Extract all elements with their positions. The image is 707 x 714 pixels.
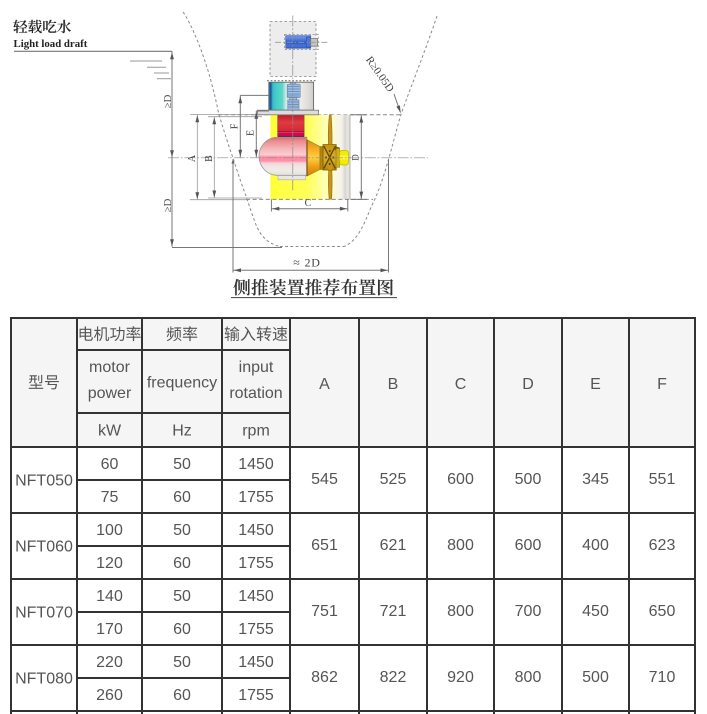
svg-text:F: F [657,376,667,393]
svg-text:800: 800 [447,537,474,554]
svg-text:rotation: rotation [229,385,282,402]
svg-text:C: C [305,198,312,209]
svg-text:260: 260 [96,687,123,704]
svg-text:545: 545 [311,471,338,488]
svg-text:60: 60 [101,456,119,473]
svg-text:140: 140 [96,588,123,605]
svg-text:A: A [319,376,330,393]
svg-text:920: 920 [447,669,474,686]
svg-text:input: input [239,359,274,376]
svg-text:500: 500 [515,471,542,488]
svg-text:power: power [88,385,132,402]
svg-text:1450: 1450 [238,522,274,539]
svg-text:862: 862 [311,669,338,686]
svg-text:D: D [350,154,360,161]
svg-text:kW: kW [98,423,122,440]
svg-text:700: 700 [515,603,542,620]
svg-text:50: 50 [173,654,191,671]
svg-text:710: 710 [649,669,676,686]
svg-text:551: 551 [649,471,676,488]
svg-text:NFT050: NFT050 [15,472,73,489]
svg-text:NFT060: NFT060 [15,538,73,555]
svg-text:60: 60 [173,555,191,572]
svg-text:1755: 1755 [238,489,274,506]
svg-text:500: 500 [582,669,609,686]
svg-text:60: 60 [173,621,191,638]
svg-text:650: 650 [649,603,676,620]
svg-text:1755: 1755 [238,687,274,704]
svg-text:651: 651 [311,537,338,554]
svg-text:1450: 1450 [238,456,274,473]
svg-text:50: 50 [173,588,191,605]
svg-text:1450: 1450 [238,588,274,605]
svg-text:50: 50 [173,522,191,539]
svg-text:100: 100 [96,522,123,539]
svg-text:220: 220 [96,654,123,671]
svg-text:621: 621 [380,537,407,554]
svg-text:822: 822 [380,669,407,686]
svg-text:50: 50 [173,456,191,473]
svg-text:D: D [522,376,534,393]
svg-text:1450: 1450 [238,654,274,671]
svg-text:751: 751 [311,603,338,620]
svg-text:A: A [187,154,198,162]
svg-text:R≥0.05D: R≥0.05D [363,54,396,94]
svg-text:1755: 1755 [238,555,274,572]
svg-text:800: 800 [515,669,542,686]
svg-text:Light load draft: Light load draft [14,38,88,50]
svg-text:NFT070: NFT070 [15,604,73,621]
svg-text:≈ 2D: ≈ 2D [293,256,320,270]
svg-text:E: E [245,130,256,136]
svg-text:B: B [388,376,399,393]
svg-text:400: 400 [582,537,609,554]
svg-text:600: 600 [515,537,542,554]
svg-text:525: 525 [380,471,407,488]
svg-text:F: F [229,123,240,129]
svg-text:800: 800 [447,603,474,620]
svg-text:345: 345 [582,471,609,488]
svg-text:60: 60 [173,687,191,704]
svg-text:1755: 1755 [238,621,274,638]
svg-text:C: C [455,376,467,393]
svg-text:450: 450 [582,603,609,620]
svg-text:60: 60 [173,489,191,506]
svg-text:Hz: Hz [172,423,192,440]
svg-text:NFT080: NFT080 [15,670,73,687]
svg-text:721: 721 [380,603,407,620]
svg-text:E: E [590,376,601,393]
svg-text:B: B [204,155,215,162]
svg-text:170: 170 [96,621,123,638]
svg-text:motor: motor [89,359,131,376]
svg-text:rpm: rpm [242,423,270,440]
svg-text:frequency: frequency [147,375,217,392]
svg-text:600: 600 [447,471,474,488]
svg-text:120: 120 [96,555,123,572]
svg-text:623: 623 [649,537,676,554]
svg-text:≥D: ≥D [162,198,174,212]
svg-text:75: 75 [101,489,119,506]
svg-text:≥D: ≥D [162,94,174,108]
